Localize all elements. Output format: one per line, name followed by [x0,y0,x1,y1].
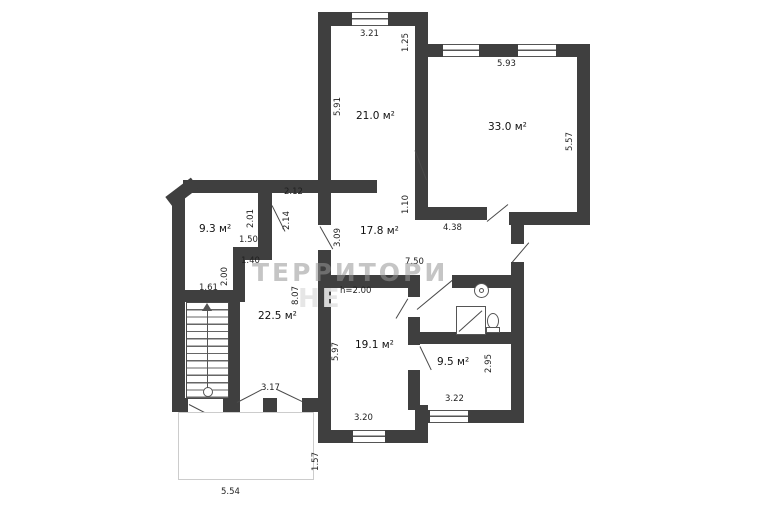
wall-outer-west [172,196,185,412]
wall [408,317,420,345]
wall [223,398,237,412]
wall [318,12,352,26]
toilet-tank-icon [486,327,500,333]
watermark-text: НЕ [298,284,342,314]
room-area-label: 19.1 м² [355,340,394,351]
wall [428,207,487,220]
dim-label: 1.50 [239,236,258,245]
wall [385,430,415,443]
stairs-center-line [207,306,208,394]
wall [408,370,420,410]
dim-label: 5.97 [332,342,341,361]
door-leaf [237,389,262,403]
dim-label: 1.25 [402,33,411,52]
porch-outline [178,412,314,480]
wall-hall-west [318,193,331,225]
dim-label: 3.22 [445,395,464,404]
dim-label: 3.17 [261,384,280,393]
dim-label: 1.61 [199,284,218,293]
dim-label: 1.57 [312,452,321,471]
window [352,12,388,26]
wall [302,398,318,412]
room-area-label: 17.8 м² [360,226,399,237]
dim-label: 5.93 [497,60,516,69]
wall [258,193,272,250]
door-leaf [420,346,432,370]
wall [318,430,353,443]
wall [228,290,240,412]
watermark-text: ТЕРРИТОРИ [252,258,448,287]
stairs-up-arrow [202,303,212,311]
window [430,410,468,423]
room-area-label: 21.0 м² [356,111,395,122]
wall [468,410,524,423]
wall-stub-110 [415,180,428,220]
dim-label: 3.21 [360,30,379,39]
door-leaf [320,226,334,249]
wall [415,405,428,443]
wall [388,12,428,26]
dim-label: 4.38 [443,224,462,233]
dim-label: 3.09 [334,228,343,247]
dim-label: 2.95 [485,354,494,373]
door-leaf [487,204,509,222]
dim-label: 1.10 [402,195,411,214]
wall [511,262,524,288]
dim-label: 2.12 [284,188,303,197]
dim-label: 3.20 [354,414,373,423]
door-leaf [512,242,530,262]
room-area-label: 22.5 м² [258,311,297,322]
dim-label: 5.57 [566,132,575,151]
window [518,44,556,57]
floor-plan: 21.0 м² 33.0 м² 9.3 м² 17.8 м² 22.5 м² 1… [0,0,770,510]
dim-label: h=2.00 [340,287,371,296]
wall [511,220,524,244]
room-area-label: 33.0 м² [488,122,527,133]
stairs-start-circle [203,387,213,397]
dim-label: 2.01 [247,209,256,228]
wall [479,44,518,57]
room-area-label: 9.5 м² [437,357,469,368]
sink-tap-icon [479,288,484,293]
wall [415,44,443,57]
wall [183,180,377,193]
window [353,430,385,443]
room-area-label: 9.3 м² [199,224,231,235]
wall [318,12,331,193]
wall [172,398,188,412]
door-leaf [277,389,303,402]
dim-label: 5.91 [334,97,343,116]
wall [263,398,277,412]
wall-east [511,288,524,423]
wall-outer-east [577,44,590,225]
window [443,44,479,57]
dim-label: 2.00 [221,267,230,286]
dim-label: 5.54 [221,488,240,497]
dim-label: 2.14 [283,211,292,230]
door-leaf [396,299,409,319]
